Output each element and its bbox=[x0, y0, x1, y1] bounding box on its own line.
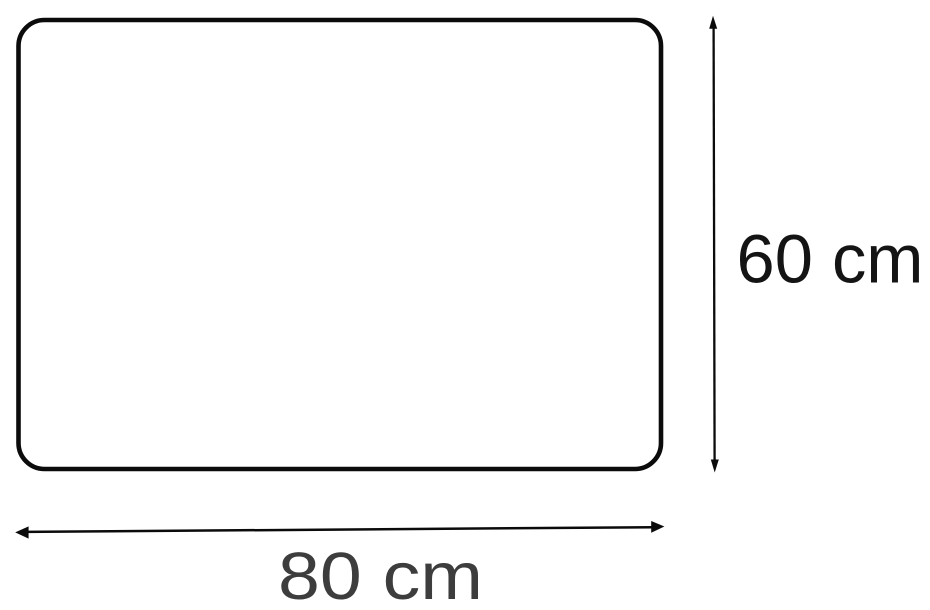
svg-text:60 cm: 60 cm bbox=[737, 221, 924, 298]
svg-text:80 cm: 80 cm bbox=[278, 539, 483, 610]
